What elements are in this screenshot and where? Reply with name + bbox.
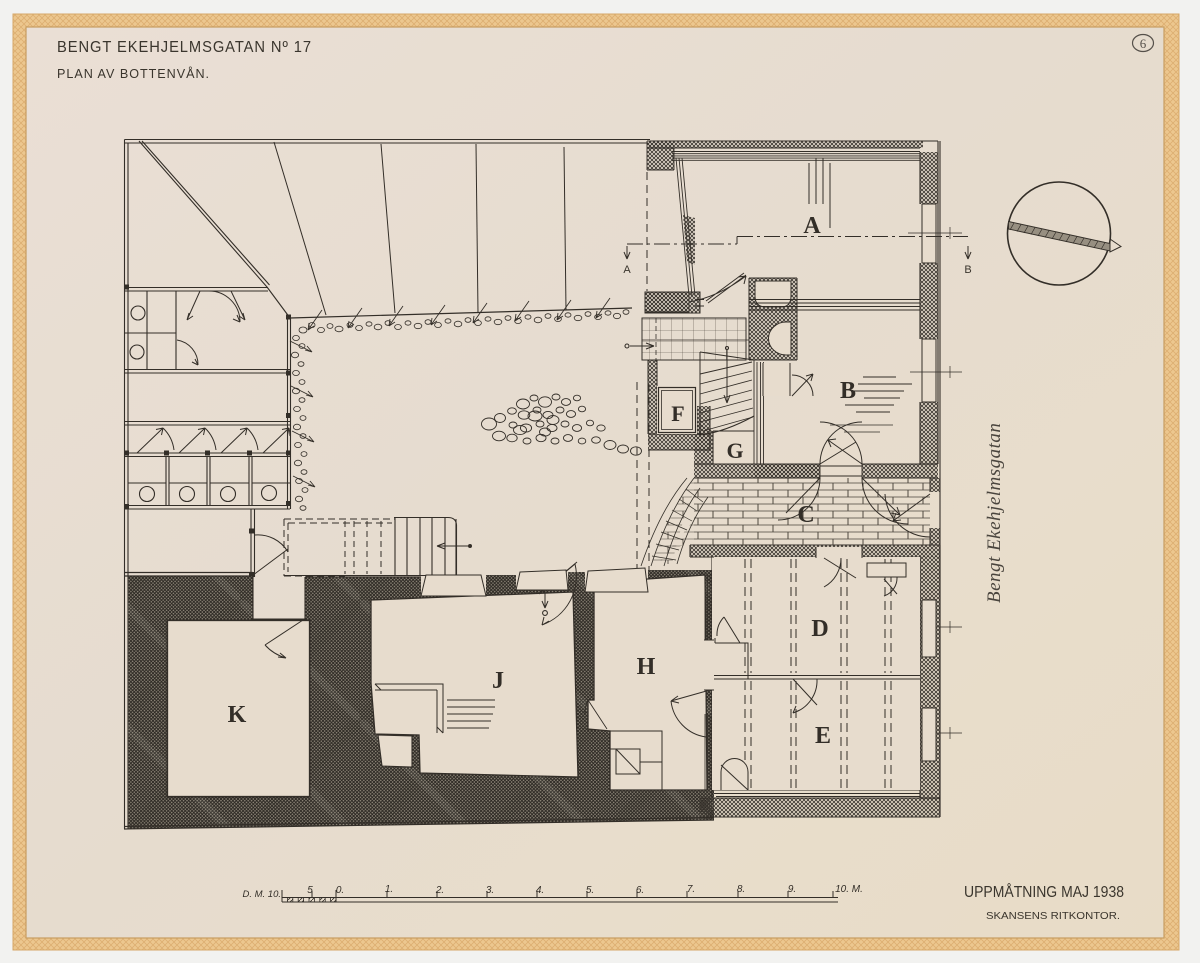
svg-text:D: D <box>811 616 828 642</box>
svg-text:H: H <box>637 654 656 680</box>
svg-text:J: J <box>492 668 504 694</box>
svg-text:D. M. 10.: D. M. 10. <box>242 889 281 900</box>
svg-text:BENGT EKEHJELMSGATAN Nº 17: BENGT EKEHJELMSGATAN Nº 17 <box>57 39 312 56</box>
svg-text:UPPMÅTNING MAJ 1938: UPPMÅTNING MAJ 1938 <box>964 884 1124 901</box>
svg-text:PLAN AV BOTTENVÅN.: PLAN AV BOTTENVÅN. <box>57 66 210 81</box>
svg-text:5.: 5. <box>586 885 594 896</box>
svg-text:A: A <box>803 213 821 239</box>
svg-text:Bengt Ekehjelmsgatan: Bengt Ekehjelmsgatan <box>984 423 1005 603</box>
svg-text:A: A <box>623 264 631 276</box>
svg-text:0.: 0. <box>336 885 344 896</box>
svg-text:2.: 2. <box>435 885 444 896</box>
svg-text:9.: 9. <box>788 884 796 895</box>
svg-text:10. M.: 10. M. <box>835 884 863 895</box>
svg-text:5: 5 <box>307 885 313 896</box>
svg-text:G: G <box>726 438 743 463</box>
svg-text:B: B <box>964 264 971 276</box>
svg-text:SKANSENS RITKONTOR.: SKANSENS RITKONTOR. <box>986 910 1120 922</box>
svg-text:6: 6 <box>1140 36 1147 51</box>
svg-text:E: E <box>815 723 831 749</box>
svg-text:4.: 4. <box>536 885 544 896</box>
svg-text:7.: 7. <box>687 884 695 895</box>
svg-text:1.: 1. <box>385 884 393 895</box>
svg-text:F: F <box>671 401 684 426</box>
svg-text:K: K <box>228 702 247 728</box>
svg-text:3.: 3. <box>486 885 494 896</box>
svg-text:8.: 8. <box>737 884 745 895</box>
svg-text:C: C <box>797 502 814 528</box>
svg-text:6.: 6. <box>636 885 644 896</box>
